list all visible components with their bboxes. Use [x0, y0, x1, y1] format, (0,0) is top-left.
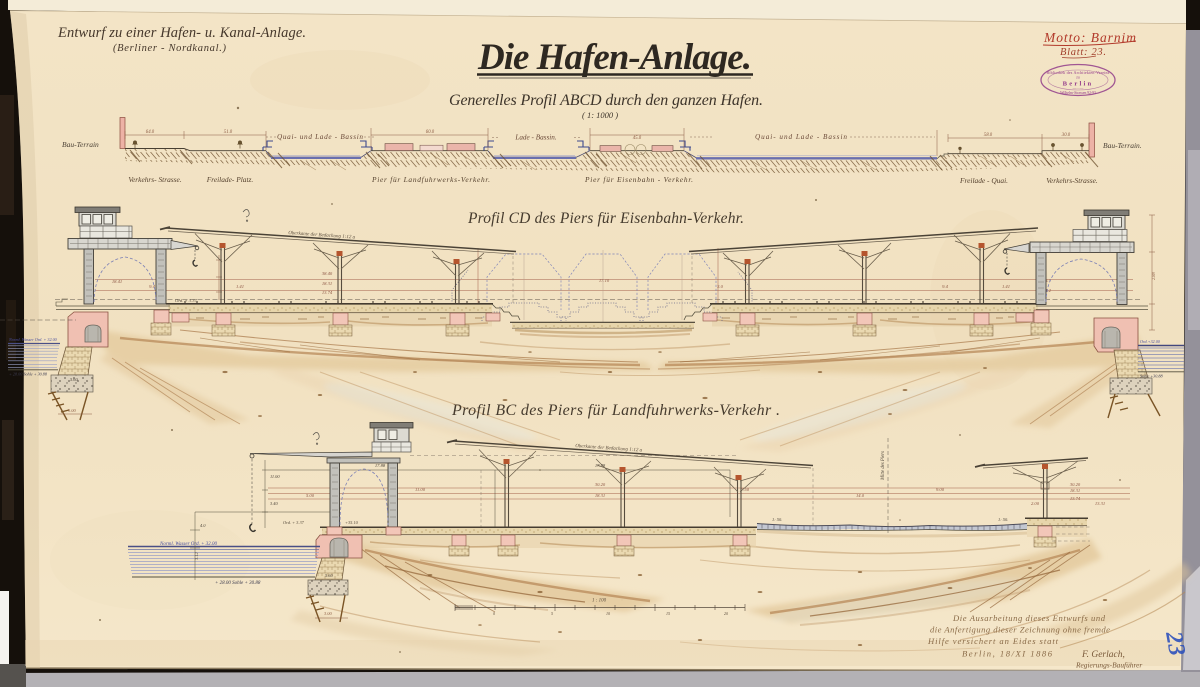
svg-text:13.31: 13.31	[1095, 501, 1105, 506]
svg-text:14.0: 14.0	[856, 493, 865, 498]
svg-text:2.88: 2.88	[1151, 272, 1156, 280]
svg-text:Freilade- Platz.: Freilade- Platz.	[206, 175, 254, 184]
svg-text:( 1: 1000 ): ( 1: 1000 )	[582, 110, 618, 120]
svg-text:15: 15	[666, 611, 670, 616]
svg-text:die Anfertigung dieser Zeichnu: die Anfertigung dieser Zeichnung ohne fr…	[930, 625, 1110, 635]
svg-text:5.60: 5.60	[70, 377, 78, 382]
svg-text:Quai- und Lade - Bassin: Quai- und Lade - Bassin	[755, 133, 847, 141]
svg-text:0: 0	[493, 611, 495, 616]
svg-text:Hilfe versichert an Eides stat: Hilfe versichert an Eides statt	[927, 636, 1059, 646]
svg-text:13.74: 13.74	[322, 290, 333, 295]
svg-text:5.00: 5.00	[306, 493, 315, 498]
svg-text:9.4: 9.4	[942, 284, 948, 289]
svg-text:Pier für Landfuhrwerks-Verkehr: Pier für Landfuhrwerks-Verkehr.	[371, 175, 490, 184]
svg-text:Freilade - Quai.: Freilade - Quai.	[959, 176, 1008, 185]
svg-text:Lade - Bassin.: Lade - Bassin.	[514, 134, 557, 142]
svg-text:Ord. + 3.37: Ord. + 3.37	[175, 298, 198, 303]
svg-text:+35.10: +35.10	[345, 520, 359, 525]
svg-text:1.41: 1.41	[1002, 284, 1010, 289]
svg-text:18.31: 18.31	[322, 281, 332, 286]
svg-text:Pier für Eisenbahn - Verkehr.: Pier für Eisenbahn - Verkehr.	[584, 175, 693, 184]
svg-text:58.0: 58.0	[984, 133, 993, 138]
svg-text:Bibliothek des Architekten-Ver: Bibliothek des Architekten-Vereins	[1046, 70, 1109, 75]
svg-text:+ 28.00 Sohle + 30.88: + 28.00 Sohle + 30.88	[215, 581, 261, 586]
svg-text:4.0: 4.0	[200, 523, 206, 528]
svg-text:Die Ausarbeitung dieses Entwur: Die Ausarbeitung dieses Entwurfs und	[952, 613, 1106, 623]
svg-text:45.0: 45.0	[633, 136, 642, 141]
svg-text:3.00: 3.00	[68, 408, 76, 413]
svg-text:7.50: 7.50	[741, 487, 750, 492]
svg-text:Entwurf zu einer Hafen- u. Kan: Entwurf zu einer Hafen- u. Kanal-Anlage.	[57, 25, 306, 41]
svg-text:30.0: 30.0	[1062, 133, 1071, 138]
svg-text:64.0: 64.0	[146, 130, 155, 135]
svg-text:+ 28.00 Sohle + 30.88: + 28.00 Sohle + 30.88	[9, 372, 48, 377]
svg-text:Generelles Profil ABCD durch d: Generelles Profil ABCD durch den ganzen …	[449, 92, 763, 109]
svg-text:Blatt: 23.: Blatt: 23.	[1060, 47, 1106, 58]
svg-text:11.00: 11.00	[270, 474, 280, 479]
svg-text:3.00: 3.00	[324, 611, 332, 616]
svg-text:1 : 100: 1 : 100	[592, 599, 607, 604]
svg-text:Ord.+32.00: Ord.+32.00	[1140, 339, 1161, 344]
svg-text:—··—: —··—	[1072, 86, 1085, 91]
svg-text:18.31: 18.31	[1070, 488, 1080, 493]
svg-text:11.00: 11.00	[415, 487, 426, 492]
svg-text:zu: zu	[1076, 76, 1080, 80]
svg-text:51.0: 51.0	[224, 130, 233, 135]
svg-text:30.20: 30.20	[595, 482, 606, 487]
svg-text:Bau-Terrain: Bau-Terrain	[62, 140, 99, 149]
svg-text:Bau-Terrain.: Bau-Terrain.	[1103, 141, 1142, 150]
svg-text:Berlin, 18/XI 1886: Berlin, 18/XI 1886	[962, 649, 1053, 659]
svg-text:1: 50.: 1: 50.	[998, 517, 1008, 522]
svg-text:Profil BC des Piers für Landfu: Profil BC des Piers für Landfuhrwerks-Ve…	[451, 402, 780, 419]
svg-text:Verkehrs- Strasse.: Verkehrs- Strasse.	[128, 175, 182, 184]
svg-text:Norml. Wasser Ord. + 32.00: Norml. Wasser Ord. + 32.00	[159, 542, 218, 547]
svg-text:18.41: 18.41	[112, 279, 122, 284]
svg-text:30.20: 30.20	[1070, 482, 1081, 487]
svg-text:Die Hafen-Anlage.: Die Hafen-Anlage.	[477, 37, 752, 78]
svg-text:5: 5	[551, 611, 553, 616]
svg-text:1: 50.: 1: 50.	[772, 517, 782, 522]
svg-text:17.88: 17.88	[375, 463, 386, 468]
svg-text:F. Gerlach,: F. Gerlach,	[1081, 650, 1125, 660]
svg-text:3.12: 3.12	[194, 552, 199, 560]
svg-text:18.31: 18.31	[595, 493, 605, 498]
svg-text:23: 23	[1160, 629, 1190, 658]
svg-text:(Berliner - Nordkanal.): (Berliner - Nordkanal.)	[113, 43, 227, 54]
svg-text:10: 10	[606, 611, 610, 616]
svg-text:Mitte des Piers: Mitte des Piers	[881, 451, 886, 481]
svg-text:5.60: 5.60	[325, 573, 333, 578]
svg-text:Sohle +30.88: Sohle +30.88	[1140, 374, 1164, 379]
svg-text:Norml. Wasser Ord. + 32.00: Norml. Wasser Ord. + 32.00	[8, 337, 58, 342]
svg-text:Wilhelm-Strassen 92-93: Wilhelm-Strassen 92-93	[1060, 91, 1096, 95]
svg-text:38.40: 38.40	[322, 271, 333, 276]
svg-text:3.40: 3.40	[270, 501, 278, 506]
svg-text:17.10: 17.10	[599, 278, 610, 283]
svg-text:Regierungs-Bauführer: Regierungs-Bauführer	[1075, 661, 1142, 670]
svg-text:1.41: 1.41	[236, 284, 244, 289]
svg-text:Ord. + 3.37: Ord. + 3.37	[283, 520, 305, 525]
svg-text:13.74: 13.74	[1070, 496, 1081, 501]
svg-text:60.0: 60.0	[426, 130, 435, 135]
svg-text:2.00: 2.00	[1031, 501, 1040, 506]
svg-text:Verkehrs-Strasse.: Verkehrs-Strasse.	[1046, 176, 1098, 185]
svg-text:20: 20	[724, 611, 728, 616]
svg-text:Profil CD des Piers für Eisenb: Profil CD des Piers für Eisenbahn-Verkeh…	[467, 210, 744, 227]
svg-text:Quai- und Lade - Bassin: Quai- und Lade - Bassin	[277, 133, 363, 141]
svg-text:9.00: 9.00	[936, 487, 945, 492]
